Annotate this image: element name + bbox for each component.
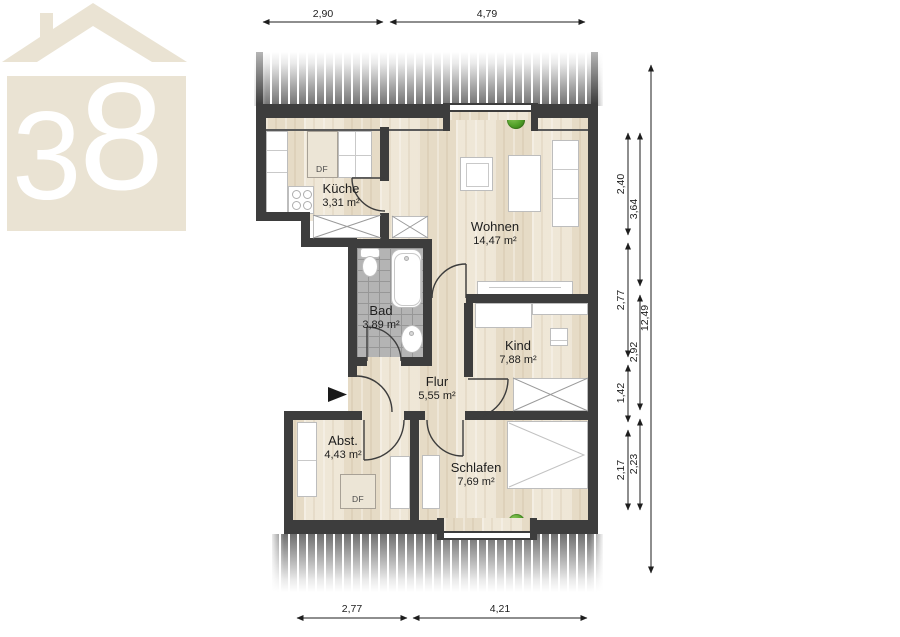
dim-label: 2,23 <box>628 454 640 474</box>
room-label-kueche: Küche 3,31 m² <box>322 182 359 210</box>
room-label-bad: Bad 3,89 m² <box>362 304 399 332</box>
kid-desk <box>550 328 568 346</box>
wall-segment <box>284 520 444 534</box>
bedroom-niche-floor <box>444 518 530 532</box>
wall-segment <box>348 239 432 248</box>
wall-segment <box>401 357 432 366</box>
dim-label: 2,90 <box>313 8 333 20</box>
logo-digit-3: 3 <box>12 94 82 219</box>
sink <box>401 325 423 353</box>
dim-label-total: 12,49 <box>639 305 651 331</box>
wall-segment <box>588 104 598 534</box>
room-area: 7,69 m² <box>451 476 502 489</box>
wall-segment <box>348 357 367 366</box>
kid-shelf <box>532 303 588 315</box>
dim-label: 2,40 <box>615 174 627 194</box>
floorplan-canvas: 3 8 <box>0 0 900 637</box>
wall-segment <box>466 294 588 303</box>
sideboard <box>477 281 573 295</box>
room-area: 5,55 m² <box>418 390 455 403</box>
stove-burner <box>303 201 312 210</box>
sink-tap <box>409 331 414 336</box>
room-area: 7,88 m² <box>499 354 536 367</box>
wall-segment <box>380 213 389 243</box>
bedroom-wardrobe <box>422 455 440 509</box>
room-name: Kind <box>499 339 536 354</box>
room-area: 3,31 m² <box>322 197 359 210</box>
stove-burner <box>292 190 301 199</box>
kid-knee-storage <box>513 378 588 411</box>
niche-stub <box>530 518 537 540</box>
dim-label: 2,17 <box>615 460 627 480</box>
sofa <box>552 140 579 227</box>
room-name: Bad <box>362 304 399 319</box>
sofa-cushion-divider <box>553 169 578 170</box>
kid-desk-line <box>551 340 567 341</box>
dim-label: 2,77 <box>342 603 362 615</box>
room-name: Küche <box>322 182 359 197</box>
wall-segment <box>410 420 419 524</box>
wall-segment <box>284 411 293 534</box>
dim-label: 2,92 <box>628 342 640 362</box>
toilet-icon <box>362 256 378 277</box>
stove-burner <box>303 190 312 199</box>
roof-edge-right <box>591 52 598 104</box>
window-top <box>450 103 531 112</box>
roof-edge-left <box>256 52 263 104</box>
kitchen-unit-divider <box>339 155 372 156</box>
dim-label: 1,42 <box>615 383 627 403</box>
sideboard-line <box>489 287 561 288</box>
wall-segment <box>256 104 598 118</box>
room-name: Flur <box>418 375 455 390</box>
window-bottom <box>444 531 530 540</box>
wall-segment <box>464 303 473 377</box>
storage-cabinet <box>390 456 410 509</box>
dim-label: 2,77 <box>615 290 627 310</box>
room-name: Wohnen <box>471 220 519 235</box>
wall-segment <box>380 127 389 181</box>
logo-digit-8: 8 <box>79 60 164 213</box>
wall-segment <box>423 239 432 366</box>
knee-wall-line <box>389 129 443 131</box>
wall-segment <box>465 411 588 420</box>
kid-bed <box>475 303 532 328</box>
wall-segment <box>256 104 266 221</box>
sofa-cushion-divider <box>553 198 578 199</box>
room-name: Schlafen <box>451 461 502 476</box>
kitchen-counter-divider <box>267 172 287 173</box>
niche-stub <box>531 103 538 131</box>
dim-label: 4,21 <box>490 603 510 615</box>
dim-label: 4,79 <box>477 8 497 20</box>
logo-house: 3 8 <box>0 0 200 240</box>
kitchen-knee-storage <box>313 215 381 238</box>
kitchen-counter-divider <box>267 150 287 151</box>
room-label-flur: Flur 5,55 m² <box>418 375 455 403</box>
skylight-label: DF <box>352 494 364 504</box>
storage-shelf-divider <box>298 460 316 461</box>
knee-wall-line <box>538 129 588 131</box>
roof-hatch-top <box>252 52 604 106</box>
niche-stub <box>437 518 444 540</box>
wall-segment <box>530 520 598 534</box>
armchair-seat <box>466 163 489 187</box>
bathtub-inner <box>394 253 421 306</box>
room-label-abst: Abst. 4,43 m² <box>324 434 361 462</box>
knee-wall-line <box>266 129 380 131</box>
bathtub-tap <box>404 256 409 261</box>
stove-burner <box>292 201 301 210</box>
skylight-label: DF <box>316 164 328 174</box>
bedroom-bed <box>507 421 588 489</box>
room-label-wohnen: Wohnen 14,47 m² <box>471 220 519 248</box>
room-area: 14,47 m² <box>471 235 519 248</box>
outside-notch-bottom-left <box>258 412 284 534</box>
coffee-table <box>508 155 541 212</box>
room-label-kind: Kind 7,88 m² <box>499 339 536 367</box>
roof-hatch-bottom <box>270 534 604 592</box>
wall-segment <box>284 411 362 420</box>
dim-label: 3,64 <box>628 199 640 219</box>
room-label-schlafen: Schlafen 7,69 m² <box>451 461 502 489</box>
room-area: 4,43 m² <box>324 449 361 462</box>
niche-stub <box>443 103 450 131</box>
livingroom-knee-storage <box>392 216 428 238</box>
room-area: 3,89 m² <box>362 319 399 332</box>
wall-segment <box>404 411 425 420</box>
outside-notch-left <box>250 221 348 412</box>
room-name: Abst. <box>324 434 361 449</box>
